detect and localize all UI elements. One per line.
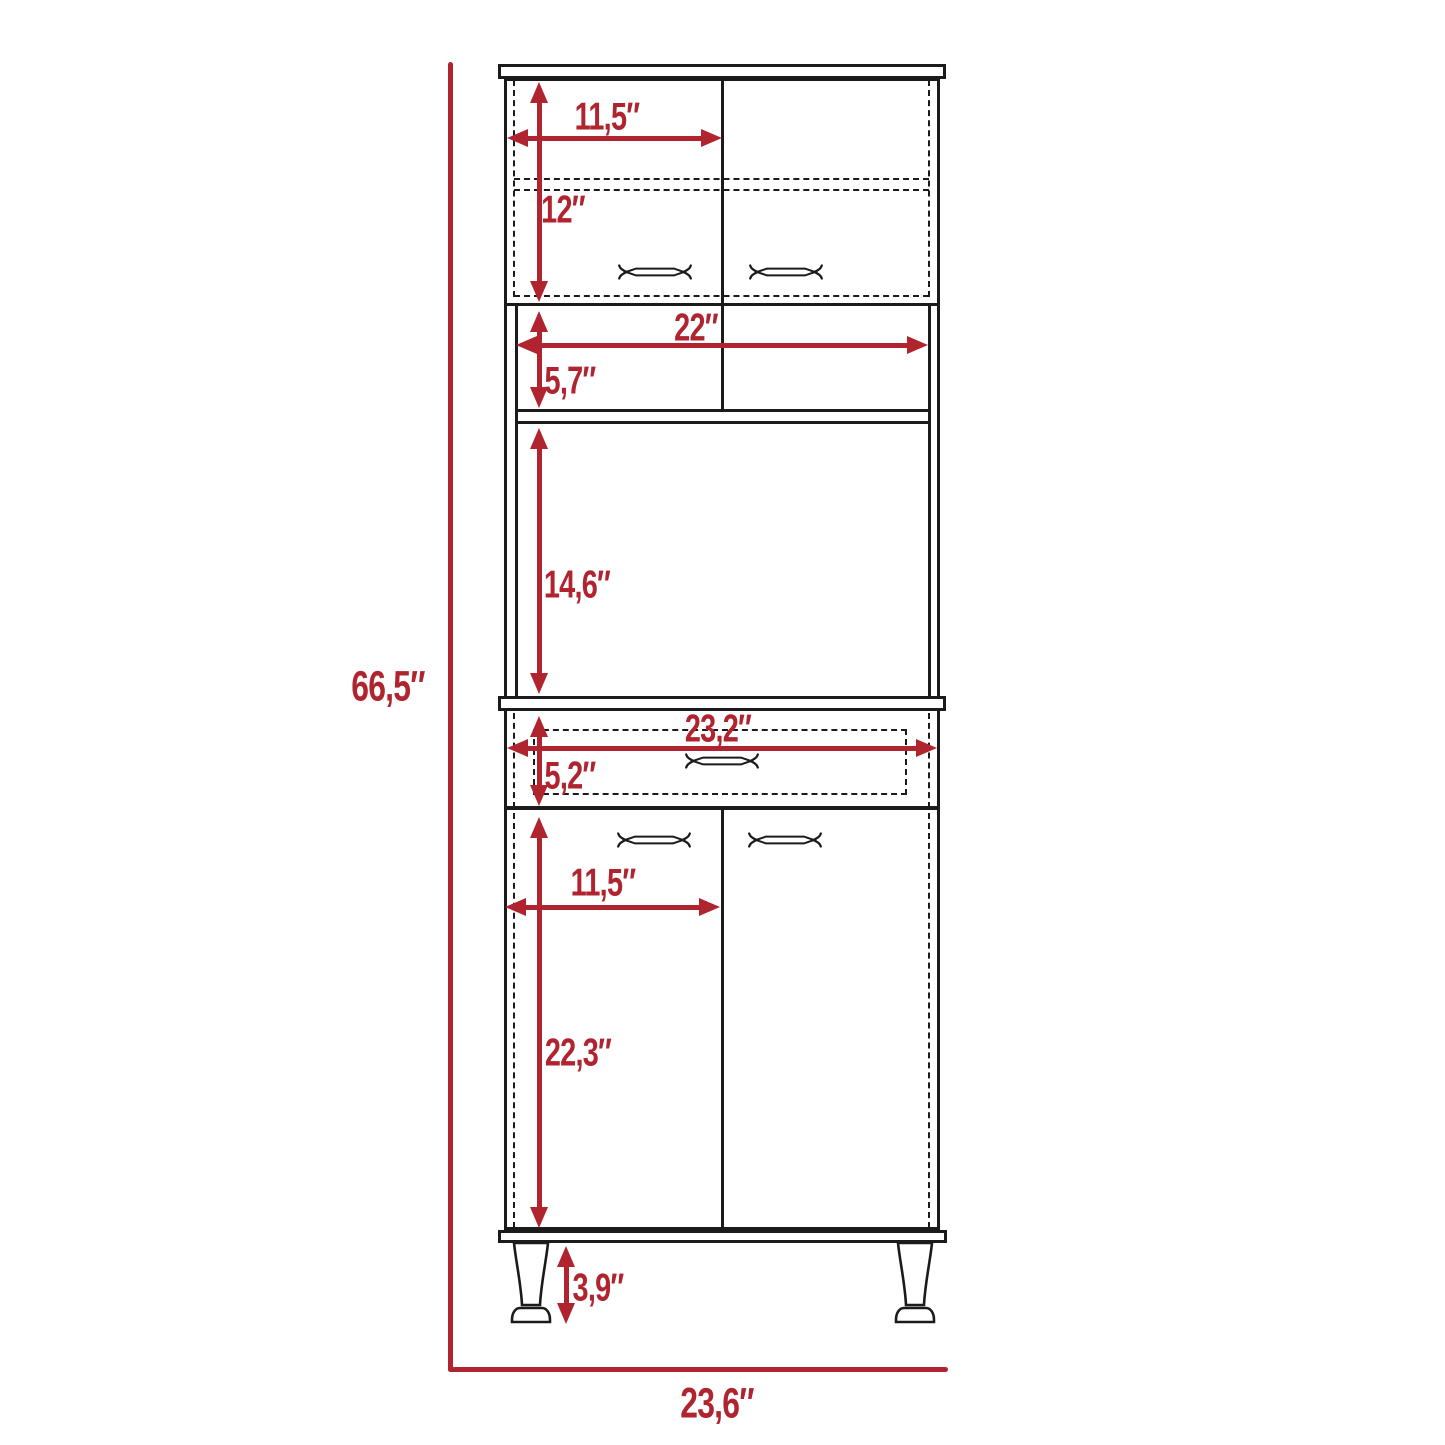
microwave-space-height-arrow: [530, 428, 548, 694]
cabinet-leg-left-icon: [508, 1242, 554, 1326]
drawer-width-label: 23,2″: [673, 710, 763, 749]
hidden-shelf-dashed-top: [514, 178, 929, 180]
drawer-height-label: 5,2″: [536, 757, 605, 796]
top-door-height-label: 12″: [533, 191, 592, 230]
bottom-right-door-handle-icon: [747, 832, 823, 848]
drawer-section-dashed-right: [928, 713, 930, 808]
bottom-door-height-label: 22,3″: [533, 1034, 623, 1073]
open-shelf-height-label: 5,7″: [536, 362, 605, 401]
overall-height-extension-line: [448, 62, 453, 1372]
bottom-door-height-arrow: [530, 817, 548, 1228]
crown-board: [498, 64, 946, 79]
top-right-door-handle-icon: [748, 264, 824, 280]
microwave-space-height-label: 14,6″: [532, 566, 622, 605]
bottom-door-dashed-edge-left: [513, 813, 515, 1228]
bottom-doors-center-divider: [721, 810, 724, 1230]
shelf-board-bottom-line: [516, 421, 930, 424]
open-shelf-width-label: 22″: [666, 309, 725, 348]
top-left-door-handle-icon: [617, 264, 693, 280]
overall-width-extension-line: [448, 1367, 948, 1372]
bottom-door-dashed-edge-right: [928, 813, 930, 1228]
top-door-dashed-edge-bottom: [514, 295, 929, 297]
inner-side-wall-left: [515, 305, 518, 698]
bottom-left-door-handle-icon: [616, 832, 692, 848]
base-board: [498, 1230, 947, 1243]
inner-side-wall-right: [928, 305, 931, 698]
bottom-door-width-label: 11,5″: [559, 864, 646, 903]
drawer-section-dashed-left: [513, 713, 515, 808]
cabinet-leg-right-icon: [892, 1242, 938, 1326]
top-door-width-label: 11,5″: [563, 98, 650, 137]
overall-width-label: 23,6″: [667, 1383, 766, 1426]
overall-height-label: 66,5″: [338, 666, 437, 709]
cabinet-dimension-diagram: 11,5″ 12″ 22″ 5,7″ 14,6″ 23,2″ 5,2″ 11,5…: [0, 0, 1445, 1445]
top-doors-center-divider: [721, 81, 724, 305]
leg-height-label: 3,9″: [564, 1269, 633, 1308]
